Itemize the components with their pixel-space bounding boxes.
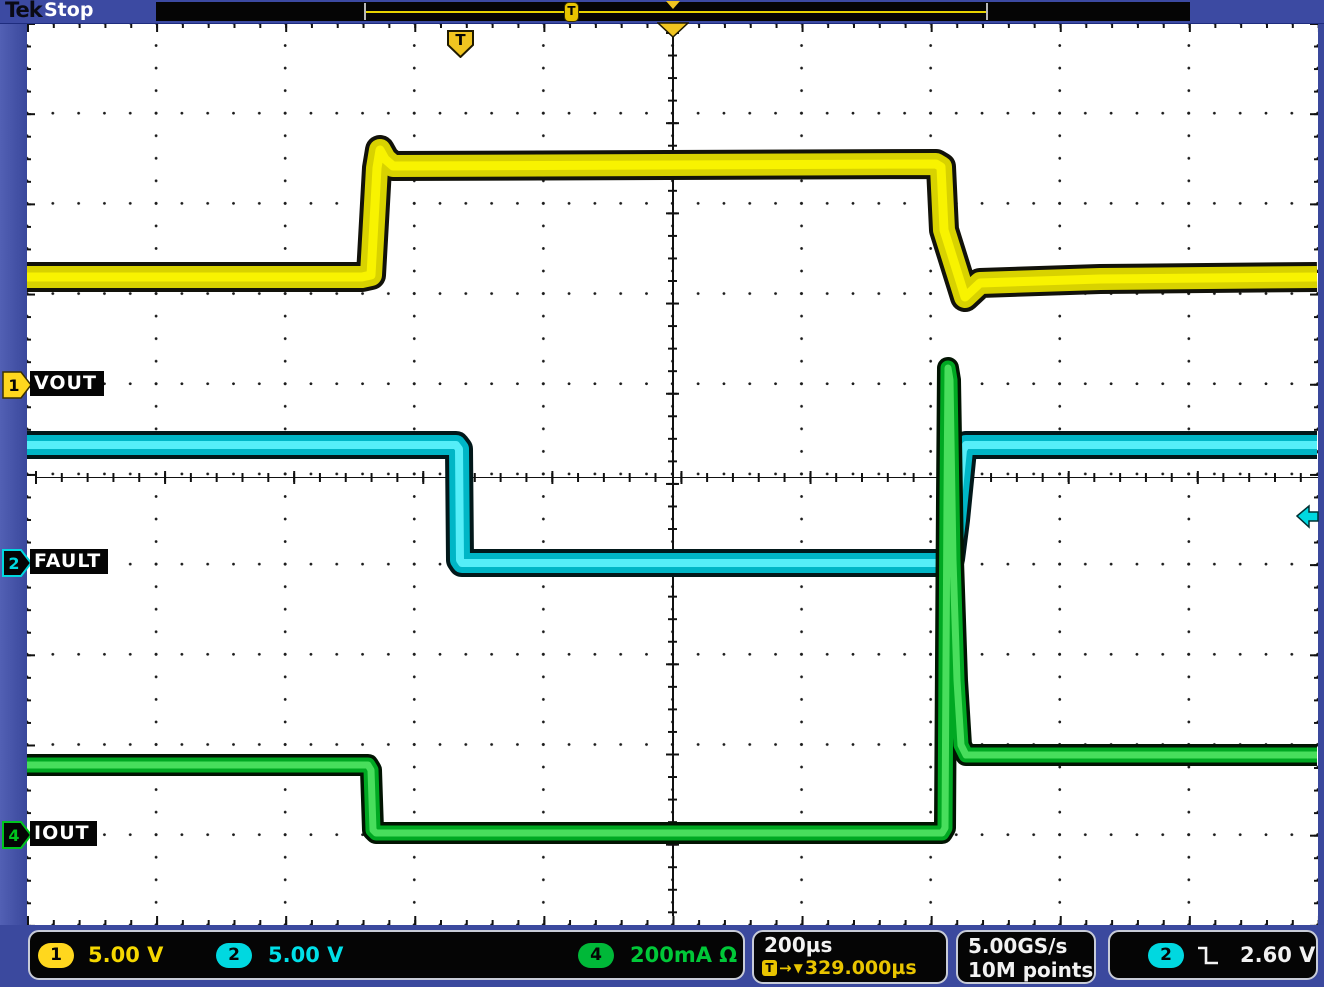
center-horizontal-axis [35, 471, 1318, 484]
timebase-readout[interactable]: 200µs T → ▼ 329.000µs [752, 930, 948, 984]
trigger-flag-letter: T [455, 31, 466, 49]
ch4-scale: 200mA Ω [630, 932, 737, 978]
acquisition-readout[interactable]: 5.00GS/s 10M points [956, 930, 1096, 984]
trigger-delay-row: T → ▼ 329.000µs [762, 958, 917, 978]
top-status-bar: Tek Stop T [0, 0, 1324, 24]
channel-scale-readout[interactable]: 1 5.00 V 2 5.00 V 4 200mA Ω [28, 930, 745, 980]
graticule [27, 23, 1318, 925]
window-bracket-right [986, 3, 988, 20]
ch1-marker-number: 1 [8, 376, 19, 395]
left-frame-strip [0, 23, 27, 925]
expansion-point-icon[interactable] [657, 22, 689, 38]
ch2-marker-number: 2 [8, 554, 19, 573]
ch1-label[interactable]: VOUT [30, 371, 104, 396]
record-view-bar[interactable]: T [156, 2, 1190, 21]
ch4-marker-number: 4 [8, 826, 19, 845]
record-length: 10M points [968, 958, 1093, 982]
ch2-label[interactable]: FAULT [30, 549, 108, 574]
sample-rate: 5.00GS/s [968, 934, 1067, 958]
falling-edge-icon [1196, 945, 1220, 967]
trigger-level: 2.60 V [1240, 932, 1315, 978]
trigger-position-flag[interactable]: T [446, 30, 475, 58]
left-tick-ruler [27, 23, 35, 925]
ch4-position-marker[interactable]: 4 [2, 821, 32, 849]
ch2-position-marker[interactable]: 2 [2, 549, 32, 577]
record-expansion-icon [666, 1, 680, 9]
trigger-source-badge[interactable]: 2 [1148, 943, 1184, 968]
ch1-position-marker[interactable]: 1 [2, 371, 32, 399]
bottom-tick-ruler [27, 916, 1318, 925]
acquisition-status[interactable]: Stop [44, 0, 93, 21]
trigger-t-icon: T [762, 960, 777, 976]
ch1-badge[interactable]: 1 [38, 943, 74, 968]
ch2-badge[interactable]: 2 [216, 943, 252, 968]
right-frame-strip [1318, 23, 1324, 925]
record-trigger-marker[interactable]: T [564, 2, 579, 22]
ch4-label[interactable]: IOUT [30, 821, 97, 846]
trigger-readout[interactable]: 2 2.60 V [1108, 930, 1318, 980]
trigger-delay-value: 329.000µs [805, 958, 917, 978]
arrow-right-icon: → [779, 960, 792, 976]
window-bracket-left [364, 3, 366, 20]
bottom-readout-bar: 1 5.00 V 2 5.00 V 4 200mA Ω 200µs T → ▼ … [0, 925, 1324, 987]
ch2-scale: 5.00 V [268, 932, 343, 978]
ch1-scale: 5.00 V [88, 932, 163, 978]
triangle-down-icon: ▼ [794, 960, 803, 976]
tek-logo: Tek [5, 0, 42, 22]
trigger-level-arrow[interactable] [1296, 504, 1319, 529]
oscilloscope-screen: Tek Stop T T 1 VOUT 2 FAULT 4 IOUT [0, 0, 1324, 987]
timebase-scale: 200µs [764, 933, 832, 958]
acquisition-window-line [365, 11, 988, 13]
ch4-badge[interactable]: 4 [578, 943, 614, 968]
